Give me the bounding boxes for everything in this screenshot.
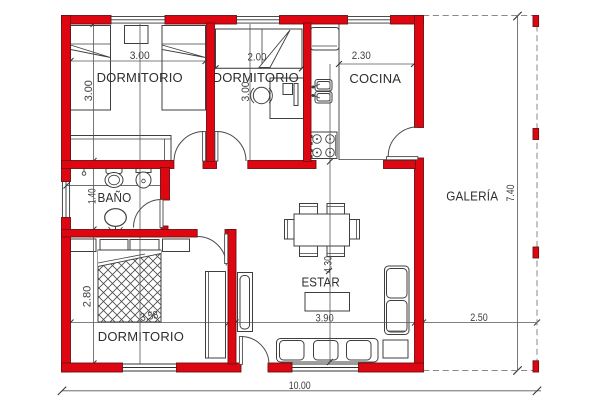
svg-text:DORMITORIO: DORMITORIO — [213, 70, 299, 85]
svg-text:DORMITORIO: DORMITORIO — [98, 329, 184, 344]
svg-text:4.30: 4.30 — [323, 256, 335, 273]
svg-text:7.40: 7.40 — [505, 185, 517, 202]
svg-text:COCINA: COCINA — [349, 71, 401, 86]
svg-text:10.00: 10.00 — [289, 380, 311, 392]
svg-text:1.40: 1.40 — [86, 188, 98, 204]
svg-text:2.80: 2.80 — [81, 286, 93, 308]
svg-text:2.30: 2.30 — [352, 50, 371, 62]
svg-text:BAÑO: BAÑO — [98, 190, 132, 205]
svg-text:GALERÍA: GALERÍA — [446, 189, 498, 204]
svg-text:ESTAR: ESTAR — [301, 275, 340, 290]
